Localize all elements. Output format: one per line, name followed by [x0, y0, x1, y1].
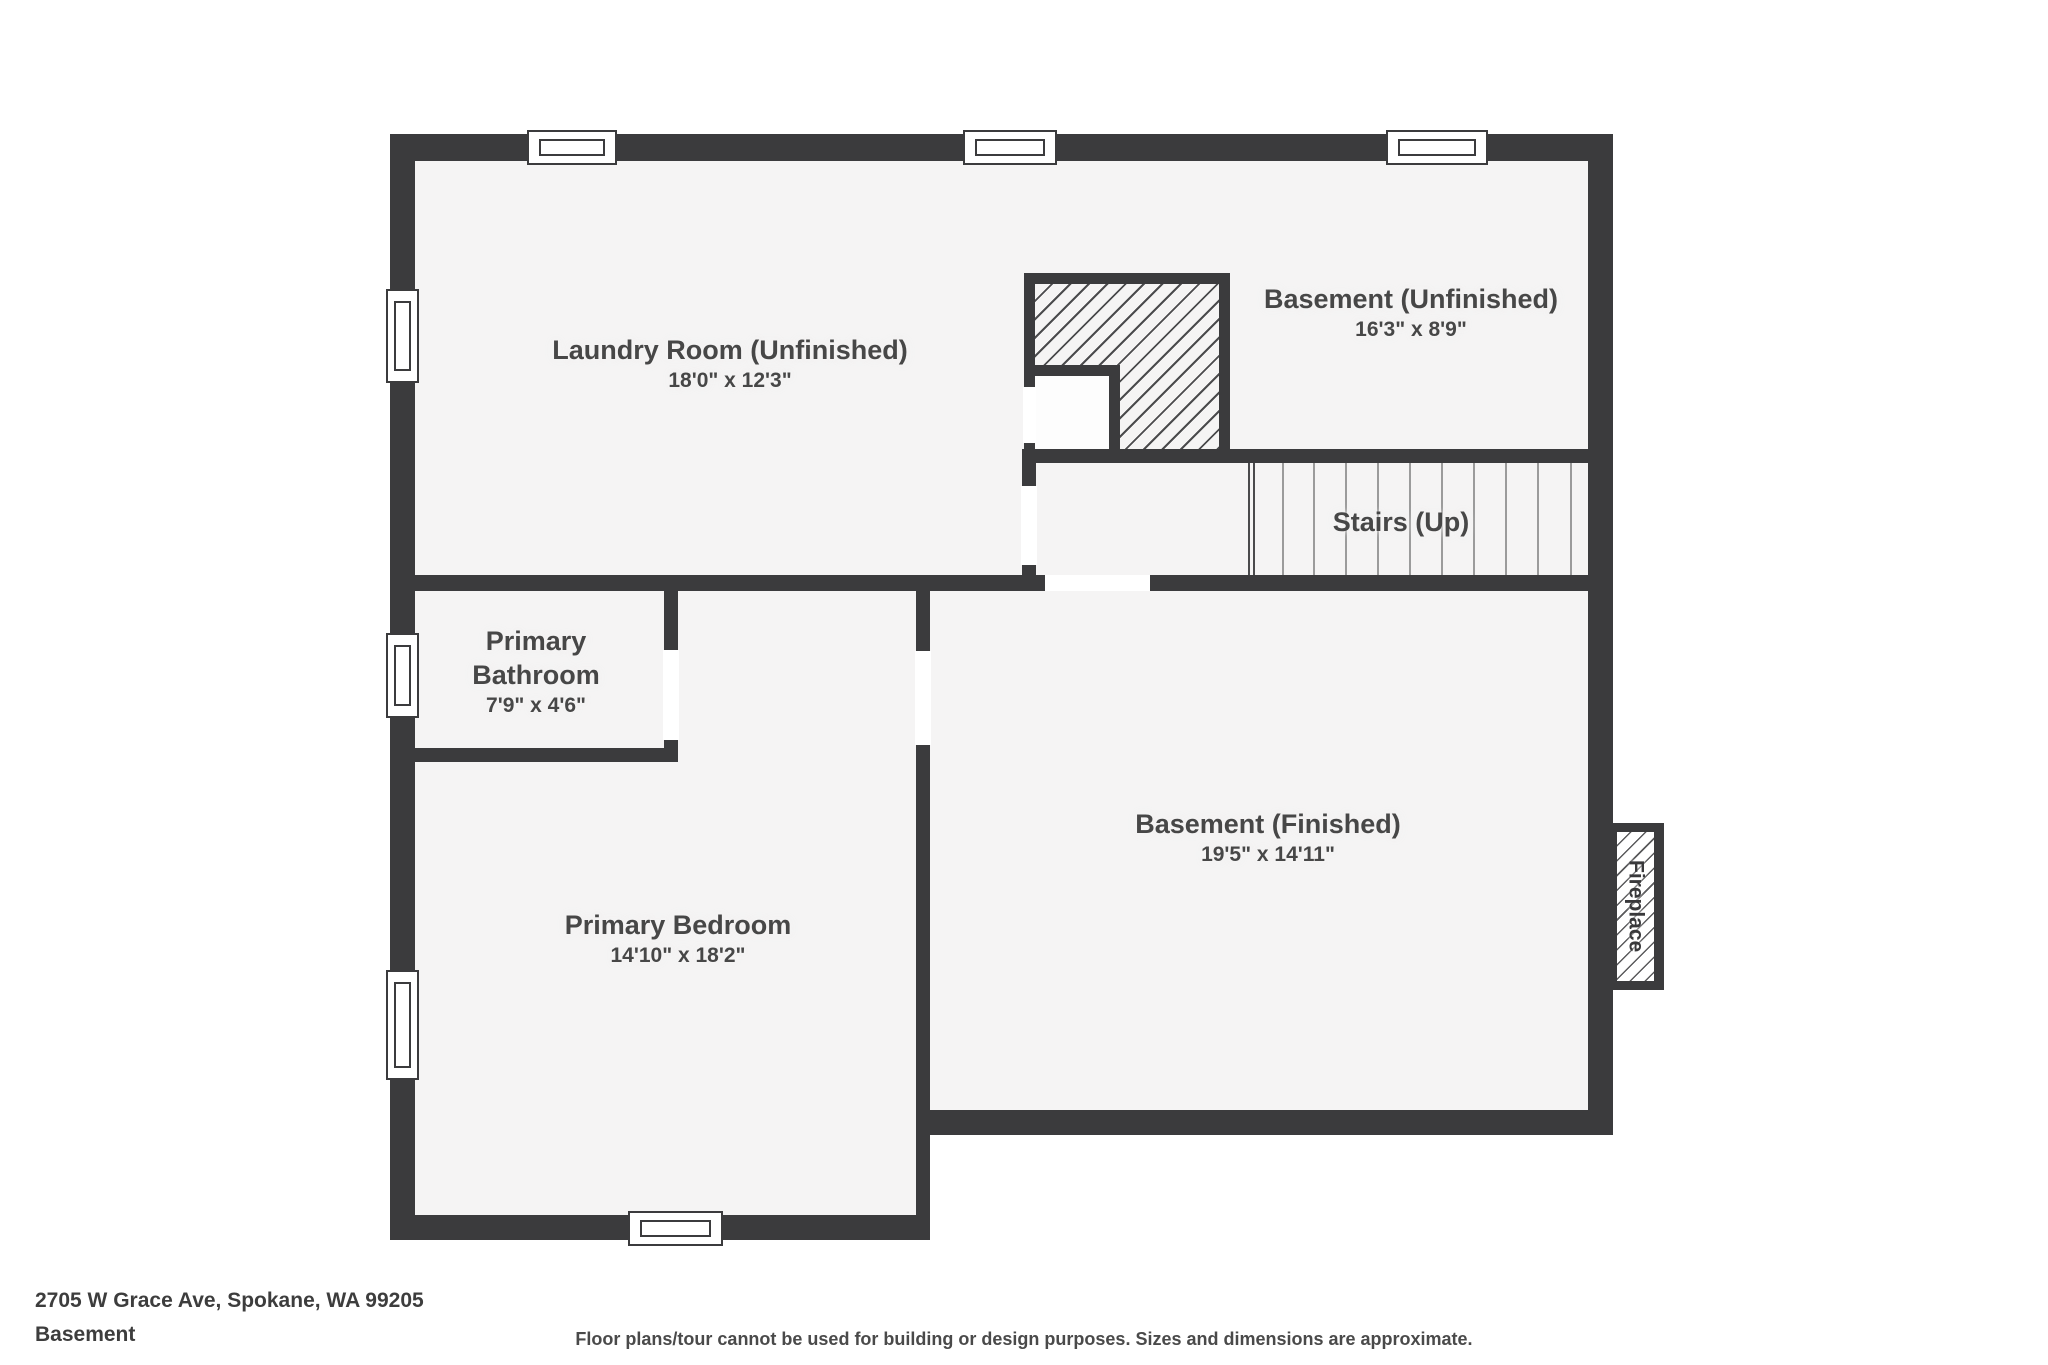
window-pane — [975, 139, 1045, 156]
room-dims: 14'10" x 18'2" — [565, 942, 792, 970]
room-title: Primary Bedroom — [565, 908, 792, 942]
wall-stairs-top — [1024, 449, 1600, 463]
fireplace-label: Fireplace — [1607, 823, 1664, 990]
wall-bedroom-right-upper — [916, 575, 930, 651]
room-title: Bathroom — [472, 658, 600, 692]
room-label-bedroom: Primary Bedroom 14'10" x 18'2" — [565, 908, 792, 970]
window-pane — [394, 301, 411, 371]
door-opening-bathroom — [663, 650, 679, 740]
room-label-basement-unfinished: Basement (Unfinished) 16'3" x 8'9" — [1264, 282, 1558, 344]
window — [386, 289, 419, 383]
closet-floor — [1035, 376, 1109, 451]
stair-tread — [1313, 463, 1315, 575]
wall-bathroom-bottom — [403, 748, 678, 762]
stair-tread — [1505, 463, 1507, 575]
door-opening-bedroom — [915, 651, 931, 745]
room-title: Primary — [472, 624, 600, 658]
wall-hatch-box-top — [1024, 273, 1230, 284]
stair-edge-line — [1253, 463, 1255, 575]
room-title: Stairs (Up) — [1333, 505, 1470, 539]
window-pane — [1398, 139, 1476, 156]
window — [386, 633, 419, 718]
disclaimer-text: Floor plans/tour cannot be used for buil… — [0, 1329, 2048, 1350]
stair-edge-line — [1248, 463, 1250, 575]
window — [963, 130, 1057, 165]
window — [386, 970, 419, 1080]
room-label-laundry: Laundry Room (Unfinished) 18'0" x 12'3" — [552, 333, 907, 395]
room-title: Basement (Unfinished) — [1264, 282, 1558, 316]
room-title: Laundry Room (Unfinished) — [552, 333, 907, 367]
wall-closet-top — [1024, 365, 1120, 376]
fireplace: Fireplace — [1607, 823, 1664, 990]
room-dims: 18'0" x 12'3" — [552, 367, 907, 395]
address-text: 2705 W Grace Ave, Spokane, WA 99205 — [35, 1284, 424, 1318]
room-label-basement-finished: Basement (Finished) 19'5" x 14'11" — [1135, 807, 1401, 869]
door-opening-landing-west — [1021, 486, 1037, 565]
door-opening-landing-south — [1045, 575, 1150, 591]
window-pane — [539, 139, 605, 156]
stair-tread — [1537, 463, 1539, 575]
stair-tread — [1282, 463, 1284, 575]
wall-hatch-box-right — [1219, 273, 1230, 462]
room-dims: 7'9" x 4'6" — [472, 692, 600, 720]
window — [527, 130, 617, 165]
wall-landing-left-upper — [1022, 449, 1036, 486]
wall-bedroom-right-lower — [916, 745, 930, 1240]
room-dims: 19'5" x 14'11" — [1135, 841, 1401, 869]
room-title: Basement (Finished) — [1135, 807, 1401, 841]
room-dims: 16'3" x 8'9" — [1264, 316, 1558, 344]
stair-tread — [1570, 463, 1572, 575]
room-label-bathroom: Primary Bathroom 7'9" x 4'6" — [472, 624, 600, 720]
wall-bathroom-right-upper — [664, 575, 678, 650]
wall-closet-right — [1109, 365, 1120, 462]
window-pane — [394, 645, 411, 706]
wall-laundry-bottom-west — [403, 575, 1045, 591]
window-pane — [640, 1220, 711, 1237]
room-label-stairs: Stairs (Up) — [1333, 505, 1470, 539]
window-pane — [394, 982, 411, 1068]
wall-basement-finished-bottom — [916, 1110, 1613, 1135]
window — [1386, 130, 1488, 165]
door-opening-closet — [1023, 387, 1036, 443]
window — [628, 1211, 723, 1246]
wall-laundry-bottom-east — [1150, 575, 1600, 591]
floor-plan-canvas: Fireplace Laundry Room (Unfinished) 18'0… — [0, 0, 2048, 1365]
wall-landing-left-lower — [1022, 565, 1036, 591]
stair-tread — [1473, 463, 1475, 575]
